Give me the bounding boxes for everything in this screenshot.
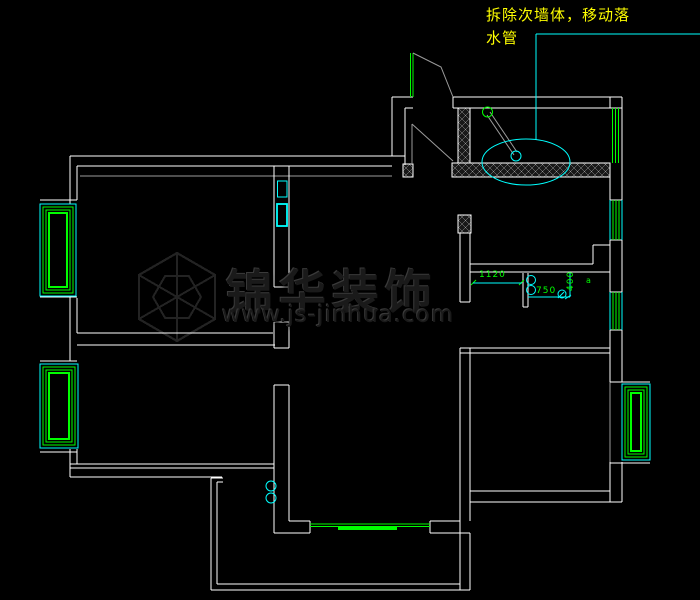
bay-window-frame <box>49 373 69 439</box>
hatched-wall-column <box>458 108 470 163</box>
bay-window-frame <box>631 393 641 451</box>
flue-box <box>277 204 287 226</box>
bathtub <box>482 139 570 185</box>
hatched-wall-pier <box>403 164 413 177</box>
hatched-wall-band <box>452 163 610 177</box>
angled-wall <box>413 53 453 97</box>
floorplan-drawing <box>0 0 700 600</box>
flue-box <box>278 181 288 197</box>
watermark-logo <box>139 253 215 341</box>
hatched-wall-column <box>458 215 471 233</box>
bay-window-frame <box>40 204 76 296</box>
bay-window-frame <box>622 384 650 460</box>
floorplan-canvas[interactable]: 拆除次墙体，移动落 水管 1120 750 400 a 锦华装饰 www.js-… <box>0 0 700 600</box>
drain <box>511 151 521 161</box>
angled-wall <box>412 124 453 161</box>
bay-window-frame <box>49 213 67 287</box>
bay-window-frame <box>43 207 73 293</box>
shower-arm <box>487 115 514 155</box>
bay-window-frame <box>43 367 75 445</box>
